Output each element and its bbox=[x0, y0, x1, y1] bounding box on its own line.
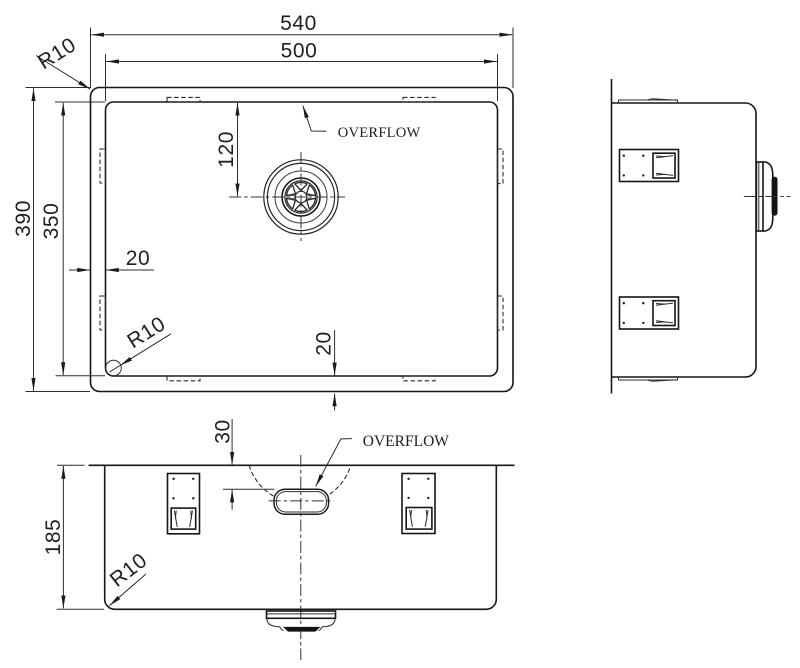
svg-text:350: 350 bbox=[40, 203, 63, 240]
svg-text:20: 20 bbox=[313, 331, 336, 356]
svg-text:185: 185 bbox=[42, 519, 65, 556]
svg-text:OVERFLOW: OVERFLOW bbox=[338, 125, 421, 141]
svg-text:R10: R10 bbox=[106, 549, 152, 592]
svg-text:OVERFLOW: OVERFLOW bbox=[363, 433, 449, 450]
svg-text:120: 120 bbox=[215, 131, 238, 168]
svg-text:540: 540 bbox=[280, 12, 317, 35]
svg-text:R10: R10 bbox=[34, 33, 80, 74]
svg-text:30: 30 bbox=[212, 419, 235, 444]
svg-text:500: 500 bbox=[281, 40, 318, 63]
svg-text:20: 20 bbox=[126, 247, 151, 270]
svg-text:390: 390 bbox=[12, 200, 35, 237]
svg-text:R10: R10 bbox=[123, 312, 169, 353]
